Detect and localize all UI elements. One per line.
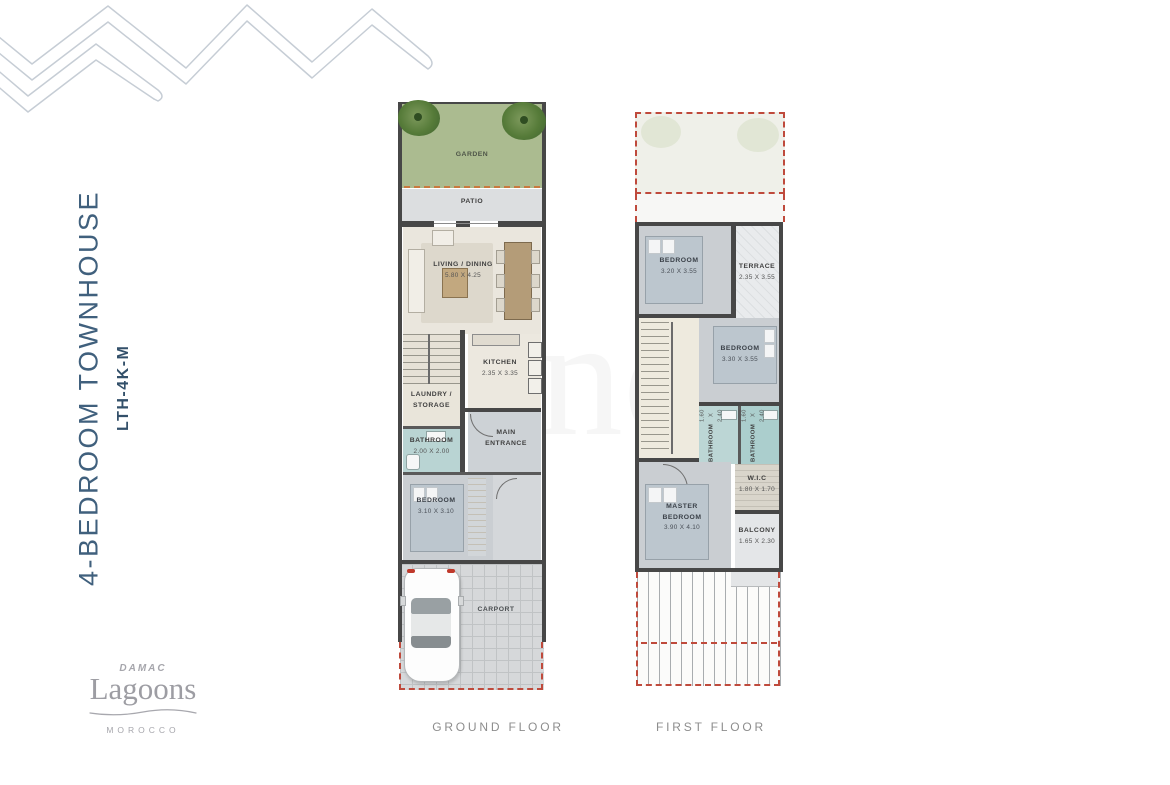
dining-chair — [496, 250, 505, 264]
coffee-table — [442, 268, 468, 298]
garden-boundary-dashed-line — [404, 186, 540, 188]
toilet — [406, 454, 420, 470]
page-title: 4-BEDROOM TOWNHOUSE — [72, 178, 106, 598]
pergola-boundary-dashed — [636, 572, 780, 686]
pillow — [663, 487, 677, 503]
dining-chair — [496, 298, 505, 312]
car-mirror — [458, 596, 464, 606]
ground-floor-plan: GARDEN PATIO LIVING / DINING 5.80 X 4.25 — [398, 102, 546, 690]
logo-name-text: Lagoons — [78, 674, 208, 704]
pillow — [764, 329, 775, 343]
first-bathroom2-label: BATHROOM 1.60 X 2.40 — [743, 408, 765, 462]
pillow — [662, 239, 675, 254]
armchair — [432, 230, 454, 246]
kitchen-counter — [472, 334, 520, 346]
wic-area — [735, 464, 779, 510]
palm-core-icon — [414, 113, 422, 121]
ghost-tree — [737, 118, 779, 152]
first-floor-caption: FIRST FLOOR — [646, 720, 776, 734]
logo-country-text: MOROCCO — [78, 725, 208, 735]
wave-decoration — [0, 0, 450, 120]
kitchen-appliance — [528, 360, 542, 376]
terrace-area — [736, 226, 779, 330]
pillow — [426, 487, 438, 502]
staircase — [403, 334, 460, 384]
patio-area — [402, 189, 542, 221]
kitchen-appliance — [528, 378, 542, 394]
car-light — [447, 569, 455, 573]
damac-lagoons-logo: DAMAC Lagoons MOROCCO — [78, 663, 208, 735]
floorplan-page: 4-BEDROOM TOWNHOUSE LTH-4K-M no GARDEN P… — [0, 0, 1170, 785]
balcony-area — [735, 514, 779, 568]
room-name: BATHROOM — [707, 424, 716, 462]
stair-rail — [671, 322, 673, 454]
sofa — [408, 249, 425, 313]
pillow — [413, 487, 425, 502]
bathroom-sink — [426, 431, 446, 442]
pillow — [648, 487, 662, 503]
stair-treads — [641, 322, 669, 454]
car-rear-window — [411, 636, 451, 648]
carport-side-wall — [542, 564, 546, 642]
room-dims: 1.60 X 2.40 — [699, 408, 726, 423]
room-dims: 1.60 X 2.40 — [741, 408, 768, 423]
open-to-below-patio — [635, 194, 785, 222]
car-mirror — [400, 596, 406, 606]
unit-code: LTH-4K-M — [113, 178, 135, 598]
ground-floor-caption: GROUND FLOOR — [408, 720, 588, 734]
dining-chair — [496, 274, 505, 288]
wardrobe — [468, 478, 486, 556]
car-light — [407, 569, 415, 573]
dining-chair — [531, 274, 540, 288]
room-name: BATHROOM — [749, 424, 758, 462]
dining-table — [504, 242, 532, 320]
stair-rail — [428, 334, 430, 384]
kitchen-appliance — [528, 342, 542, 358]
door-sill-line — [434, 223, 498, 224]
interior-wall — [460, 330, 465, 474]
car-windshield — [411, 598, 451, 614]
logo-swoosh-icon — [88, 709, 198, 717]
laundry-storage-area — [403, 384, 460, 426]
pillow — [648, 239, 661, 254]
car-roof — [411, 614, 451, 636]
first-floor-plan: BEDROOM 3.20 X 3.55 TERRACE 2.35 X 3.55 … — [635, 112, 785, 688]
dining-chair — [531, 250, 540, 264]
pillow — [764, 344, 775, 358]
dining-chair — [531, 298, 540, 312]
ghost-tree — [641, 116, 681, 148]
first-bathroom1-label: BATHROOM 1.60 X 2.40 — [701, 408, 723, 462]
palm-core-icon — [520, 116, 528, 124]
